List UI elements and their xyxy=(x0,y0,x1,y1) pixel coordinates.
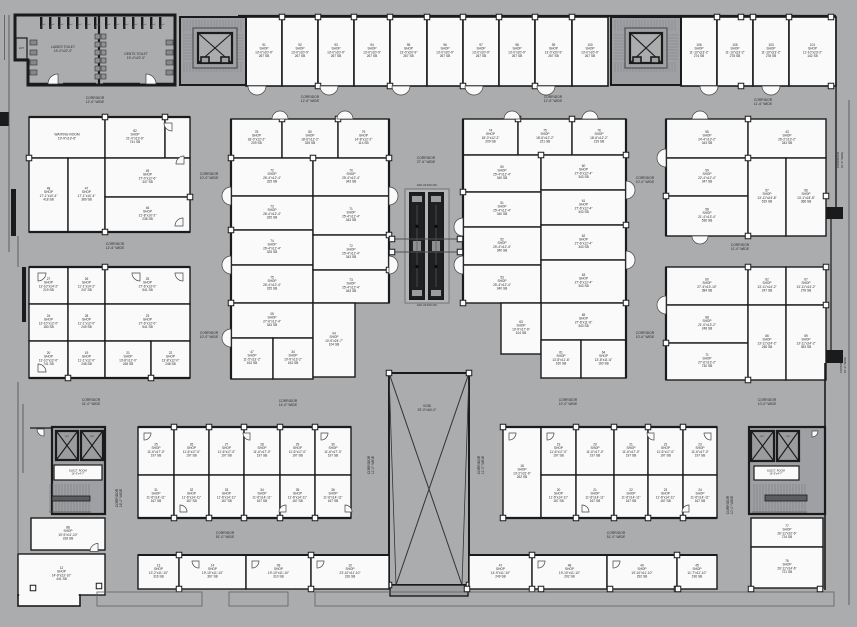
svg-text:CORRIDOR12'-6" WIDE: CORRIDOR12'-6" WIDE xyxy=(106,242,125,250)
svg-text:CORRIDOR11'-0" WIDE: CORRIDOR11'-0" WIDE xyxy=(731,243,750,251)
svg-text:CORRIDOR14'-0" WIDE: CORRIDOR14'-0" WIDE xyxy=(279,399,298,407)
svg-text:CORRIDOR12'-6" WIDE: CORRIDOR12'-6" WIDE xyxy=(544,95,563,103)
svg-text:CORRIDOR10'-0" WIDE: CORRIDOR10'-0" WIDE xyxy=(726,495,734,514)
svg-text:GENTS TOILET19'-4"x22'-0": GENTS TOILET19'-4"x22'-0" xyxy=(124,52,148,60)
svg-text:CORRIDOR10'-0" WIDE: CORRIDOR10'-0" WIDE xyxy=(559,398,578,406)
svg-text:CORRIDOR11'-0" WIDE: CORRIDOR11'-0" WIDE xyxy=(477,455,485,474)
svg-text:CORRIDOR18'-0" WIDE: CORRIDOR18'-0" WIDE xyxy=(115,488,123,507)
svg-text:ESC-UP ESC-DN: ESC-UP ESC-DN xyxy=(417,304,437,307)
svg-text:CORRIDOR10'-0" WIDE: CORRIDOR10'-0" WIDE xyxy=(636,176,655,184)
svg-text:CORRIDOR51'-0" WIDE: CORRIDOR51'-0" WIDE xyxy=(216,531,235,539)
svg-text:ELECT. ROOM16'-0"x4'-7": ELECT. ROOM16'-0"x4'-7" xyxy=(69,469,87,476)
svg-text:CORRIDOR10'-0" WIDE: CORRIDOR10'-0" WIDE xyxy=(836,151,844,168)
svg-text:WAITING ROOM19'-9"x13'-6": WAITING ROOM19'-9"x13'-6" xyxy=(54,133,79,141)
svg-text:LIFT: LIFT xyxy=(90,436,95,438)
svg-text:ESC-UP ESC-DN: ESC-UP ESC-DN xyxy=(417,184,437,187)
svg-text:LIFT: LIFT xyxy=(19,46,25,50)
svg-text:LADIES TOILET19'-2"x22'-0": LADIES TOILET19'-2"x22'-0" xyxy=(51,45,75,53)
svg-text:CORRIDOR31'-0" WIDE: CORRIDOR31'-0" WIDE xyxy=(82,398,101,406)
svg-text:CORRIDOR11'-6" WIDE: CORRIDOR11'-6" WIDE xyxy=(754,98,773,106)
svg-text:CORRIDOR51'-0" WIDE: CORRIDOR51'-0" WIDE xyxy=(607,531,626,539)
svg-text:CORRIDOR27'-6" WIDE: CORRIDOR27'-6" WIDE xyxy=(417,156,436,164)
svg-text:CORRIDOR12'-6" WIDE: CORRIDOR12'-6" WIDE xyxy=(301,95,320,103)
svg-text:LIFT: LIFT xyxy=(786,436,791,438)
svg-text:CORRIDOR12'-6" WIDE: CORRIDOR12'-6" WIDE xyxy=(86,96,105,104)
svg-text:CORRIDOR10'-0" WIDE: CORRIDOR10'-0" WIDE xyxy=(758,398,777,406)
svg-text:LIFT: LIFT xyxy=(760,436,765,438)
svg-text:LIFT: LIFT xyxy=(65,436,70,438)
svg-text:CORRIDOR10'-6" WIDE: CORRIDOR10'-6" WIDE xyxy=(636,331,655,339)
svg-text:CORRIDOR10'-0" WIDE: CORRIDOR10'-0" WIDE xyxy=(200,331,219,339)
svg-text:CORRIDOR10'-0" WIDE: CORRIDOR10'-0" WIDE xyxy=(200,172,219,180)
svg-text:ELECT. ROOM16'-0"x4'-7": ELECT. ROOM16'-0"x4'-7" xyxy=(767,469,785,476)
svg-text:CORRIDOR11'-0" WIDE: CORRIDOR11'-0" WIDE xyxy=(367,455,375,474)
